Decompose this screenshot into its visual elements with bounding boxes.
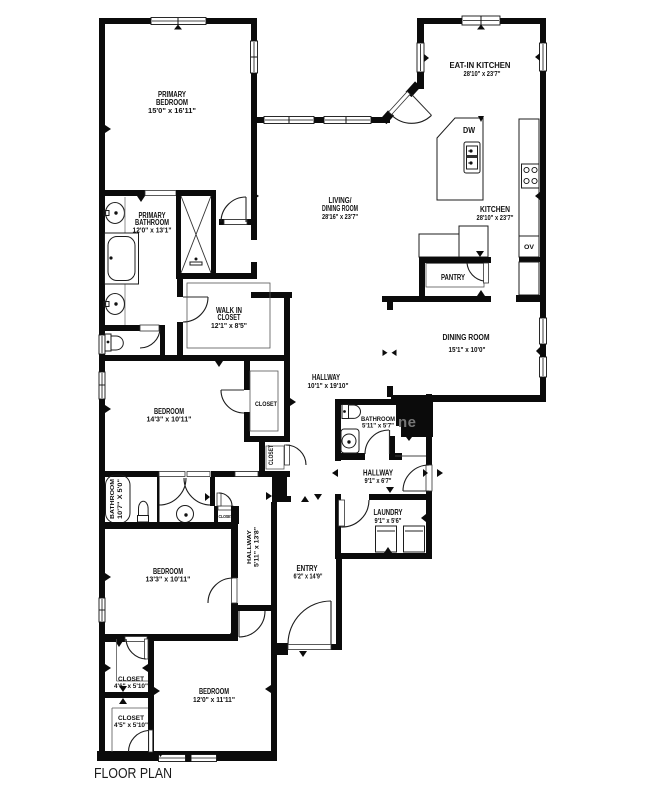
- svg-text:9'1" x 5'6": 9'1" x 5'6": [375, 518, 402, 525]
- svg-text:BATHROOM: BATHROOM: [110, 479, 116, 519]
- svg-text:LAUNDRY: LAUNDRY: [374, 508, 403, 517]
- svg-text:BEDROOM: BEDROOM: [154, 407, 184, 416]
- svg-text:HALLWAY: HALLWAY: [312, 373, 340, 382]
- svg-text:10'1" x 19'10": 10'1" x 19'10": [308, 383, 349, 390]
- svg-text:CLOSET: CLOSET: [255, 401, 277, 408]
- svg-text:12'1" x 8'5": 12'1" x 8'5": [211, 323, 247, 330]
- svg-text:9'1" x 6'7": 9'1" x 6'7": [365, 478, 392, 485]
- svg-text:13'3" x 10'11": 13'3" x 10'11": [146, 577, 191, 584]
- svg-text:EAT-IN KITCHEN: EAT-IN KITCHEN: [450, 60, 511, 70]
- svg-text:DINING ROOM: DINING ROOM: [322, 204, 358, 213]
- svg-text:15'1" x 10'0": 15'1" x 10'0": [449, 347, 486, 354]
- svg-text:28'16" x 23'7": 28'16" x 23'7": [322, 214, 358, 221]
- svg-text:12'0" x 13'1": 12'0" x 13'1": [133, 228, 172, 235]
- svg-text:HALLWAY: HALLWAY: [363, 469, 394, 478]
- svg-text:14'3" x 10'11": 14'3" x 10'11": [147, 417, 192, 424]
- svg-text:ENTRY: ENTRY: [297, 564, 319, 573]
- svg-text:FLOOR PLAN: FLOOR PLAN: [94, 765, 172, 782]
- svg-text:12'0" x 11'11": 12'0" x 11'11": [193, 697, 235, 704]
- svg-text:PANTRY: PANTRY: [441, 273, 465, 282]
- svg-text:5'11" x 5'7": 5'11" x 5'7": [362, 424, 394, 430]
- svg-text:6'2" x 14'9": 6'2" x 14'9": [294, 574, 323, 581]
- svg-text:BEDROOM: BEDROOM: [156, 98, 188, 107]
- svg-text:KITCHEN: KITCHEN: [480, 205, 510, 214]
- svg-text:OV: OV: [524, 244, 535, 251]
- svg-text:CLOSET: CLOSET: [219, 514, 234, 519]
- svg-text:4'6" x 5'10": 4'6" x 5'10": [114, 683, 148, 690]
- svg-text:DINING ROOM: DINING ROOM: [443, 333, 490, 342]
- svg-text:28'10" x 23'7": 28'10" x 23'7": [464, 71, 501, 78]
- svg-text:BATHROOM: BATHROOM: [361, 416, 395, 423]
- svg-text:BEDROOM: BEDROOM: [199, 687, 229, 696]
- svg-text:ne: ne: [398, 414, 417, 431]
- svg-text:DW: DW: [463, 126, 475, 135]
- svg-text:5'11" x 13'8": 5'11" x 13'8": [254, 527, 261, 567]
- svg-text:BEDROOM: BEDROOM: [153, 567, 183, 576]
- svg-text:CLOSET: CLOSET: [268, 445, 275, 465]
- svg-text:HALLWAY: HALLWAY: [247, 530, 253, 564]
- svg-text:CLOSET: CLOSET: [218, 313, 241, 322]
- svg-text:BATHROOM: BATHROOM: [135, 218, 169, 227]
- svg-text:CLOSET: CLOSET: [118, 676, 144, 683]
- svg-text:15'0" x 16'11": 15'0" x 16'11": [148, 108, 196, 115]
- svg-text:10'7" X 5'0": 10'7" X 5'0": [117, 479, 124, 519]
- svg-text:28'10" x 23'7": 28'10" x 23'7": [477, 215, 514, 222]
- svg-text:4'5" x 5'10": 4'5" x 5'10": [114, 722, 148, 729]
- svg-text:CLOSET: CLOSET: [118, 715, 144, 722]
